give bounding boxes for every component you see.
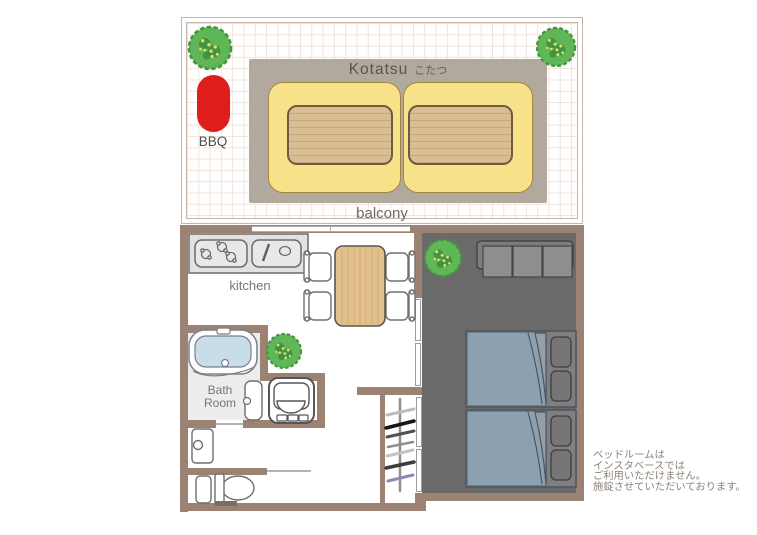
chair-icon-top-right xyxy=(386,251,415,282)
toilet-icon xyxy=(196,474,254,506)
balcony-sliding-window xyxy=(252,226,410,232)
wall-stub xyxy=(357,387,422,395)
bbq-label: BBQ xyxy=(190,134,236,149)
bedroom-floor xyxy=(422,233,576,493)
wall-washer-top xyxy=(260,373,325,381)
floor-plan: Kotatsuこたつ BBQ balcony xyxy=(0,0,757,535)
tatami-mat-left xyxy=(287,105,393,165)
chair-icon-bottom-left xyxy=(304,290,331,321)
balcony-label: balcony xyxy=(181,205,583,222)
bbq-grill xyxy=(197,75,230,132)
chair-icon-top-left xyxy=(304,251,331,282)
washing-machine-icon xyxy=(269,378,314,423)
bedroom-sliding-door-a xyxy=(415,299,421,341)
kitchen-label: kitchen xyxy=(205,278,295,293)
wall-closet-left xyxy=(380,395,385,503)
kotatsu-label: Kotatsuこたつ xyxy=(249,61,547,79)
bedroom-sliding-door-b xyxy=(415,343,421,386)
note-text: ベッドルームは インスタベースでは ご利用いただけません。 施錠させていただいて… xyxy=(593,451,757,493)
window-divider xyxy=(330,226,331,232)
kotatsu-label-jp: こたつ xyxy=(414,65,447,77)
wall-washer-right xyxy=(317,381,325,428)
dining-table-icon xyxy=(335,246,385,326)
stove-icon xyxy=(201,242,236,262)
hanger-rack-icon xyxy=(386,399,414,491)
door-opening-hall xyxy=(216,423,243,425)
bathroom-label: Bath Room xyxy=(194,384,246,409)
wall-bottom-bedroom xyxy=(415,493,584,501)
note-line-1: ベッドルームは xyxy=(593,451,757,462)
wall-below-bath-a xyxy=(180,420,216,428)
closet-sliding-door-b xyxy=(416,449,422,492)
wall-join xyxy=(415,493,426,511)
bush-icon-living xyxy=(267,334,301,368)
vanity-sink-icon xyxy=(192,429,213,463)
kitchen-counter-icon xyxy=(189,234,308,273)
wall-bedroom-left xyxy=(414,233,422,298)
door-opening-toilet xyxy=(267,470,311,472)
sink-icon xyxy=(263,244,291,261)
wall-above-toilet xyxy=(180,468,267,475)
chair-icon-bottom-right xyxy=(386,290,415,321)
wall-below-bath-b xyxy=(243,420,325,428)
wall-right xyxy=(576,233,584,501)
kotatsu-label-en: Kotatsu xyxy=(349,61,409,78)
note-line-4: 施錠させていただいております。 xyxy=(593,483,757,494)
tatami-mat-right xyxy=(408,105,513,165)
closet-sliding-door-a xyxy=(416,397,422,447)
wall-bath-top xyxy=(180,325,268,333)
wall-bottom-left xyxy=(180,503,426,511)
